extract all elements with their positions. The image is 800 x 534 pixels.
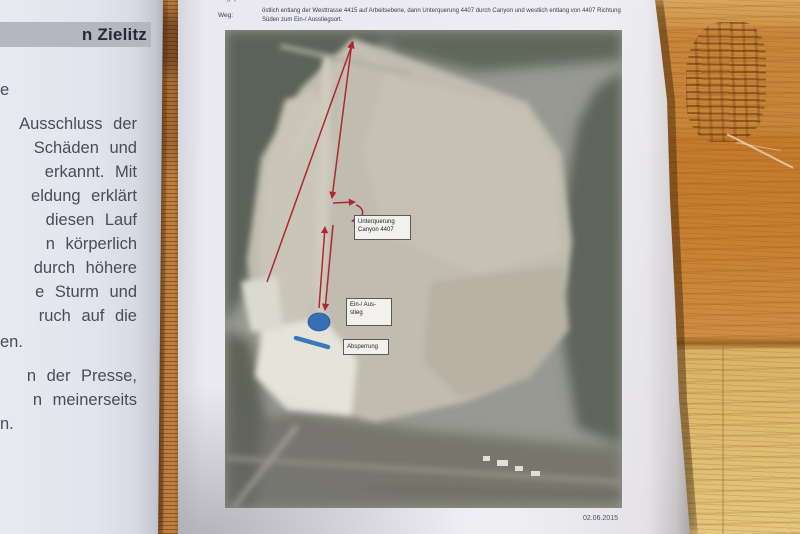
left-doc-text-line: eldung erklärt xyxy=(0,184,137,208)
left-doc-text-line: n. xyxy=(0,412,14,436)
left-doc-text-line: Schäden und xyxy=(0,136,137,160)
left-document-highlighted-title: n Zielitz xyxy=(0,22,151,47)
left-doc-text-line: e Sturm und xyxy=(0,280,137,304)
page-curl-shading xyxy=(178,0,692,534)
left-doc-text-line: n der Presse, xyxy=(0,364,137,388)
wood-grain-marks xyxy=(686,22,766,142)
wood-plank-seam xyxy=(722,346,724,534)
route-plan-page: Wegeplan Route 3 Weg: östlich entlang de… xyxy=(178,0,692,534)
photographed-documents-scene: n Zielitz e Ausschluss der Schäden und e… xyxy=(0,0,800,534)
left-doc-text-line: ruch auf die xyxy=(0,304,137,328)
left-doc-text-line: diesen Lauf xyxy=(0,208,137,232)
left-doc-text-line: Ausschluss der xyxy=(0,112,137,136)
left-doc-text-line: e xyxy=(0,78,9,102)
left-doc-text-line: durch höhere xyxy=(0,256,137,280)
left-doc-text-line: n körperlich xyxy=(0,232,137,256)
left-doc-text-line: n meinerseits xyxy=(0,388,137,412)
left-document-page: n Zielitz e Ausschluss der Schäden und e… xyxy=(0,0,163,534)
left-doc-text-line: erkannt. Mit xyxy=(0,160,137,184)
left-doc-text-line: en. xyxy=(0,330,23,354)
